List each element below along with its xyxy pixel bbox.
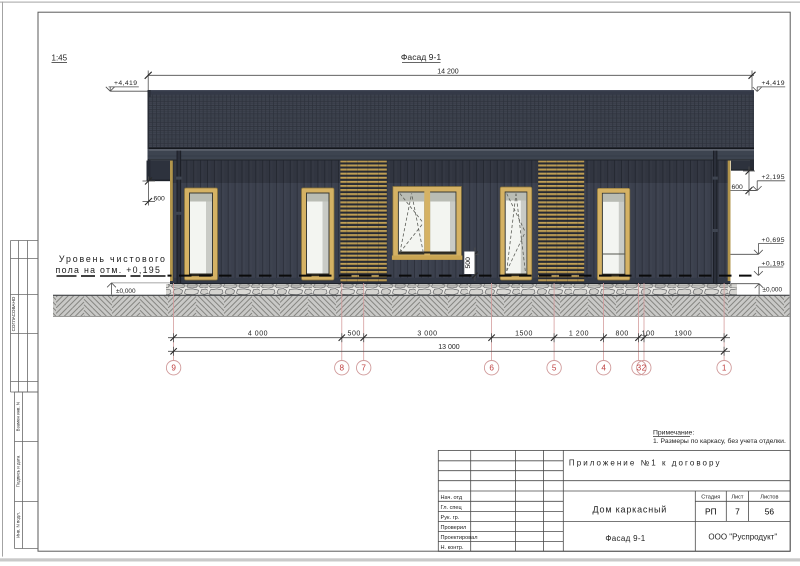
svg-text:Взамен инв. N: Взамен инв. N (16, 402, 21, 431)
svg-text:±0,000: ±0,000 (116, 288, 136, 295)
svg-text:Рук. гр.: Рук. гр. (441, 515, 460, 521)
svg-text:Примечание:: Примечание: (653, 430, 694, 437)
svg-text:±0,000: ±0,000 (763, 286, 783, 293)
svg-text:РП: РП (705, 507, 717, 517)
svg-text:600: 600 (732, 184, 744, 191)
svg-text:600: 600 (154, 195, 166, 202)
svg-text:13 000: 13 000 (438, 344, 460, 351)
svg-text:Подпись и дата: Подпись и дата (16, 455, 21, 487)
svg-text:14 200: 14 200 (437, 68, 459, 75)
svg-text:+4,419: +4,419 (762, 80, 785, 87)
svg-text:500: 500 (348, 330, 361, 337)
svg-text:Проверил: Проверил (441, 525, 467, 531)
svg-text:1. Размеры по каркасу, без уче: 1. Размеры по каркасу, без учета отделки… (653, 437, 786, 445)
svg-text:Лист: Лист (731, 495, 744, 501)
svg-text:56: 56 (765, 507, 775, 517)
svg-text:СОГЛАСОВАНО: СОГЛАСОВАНО (11, 296, 16, 331)
svg-text:Уровень чистового: Уровень чистового (59, 254, 167, 264)
svg-text:1 200: 1 200 (569, 330, 589, 337)
svg-text:7: 7 (735, 507, 740, 517)
svg-text:пола на отм. +0,195: пола на отм. +0,195 (56, 265, 162, 275)
svg-text:Приложение №1 к договору: Приложение №1 к договору (569, 459, 722, 468)
svg-text:1500: 1500 (515, 330, 533, 337)
svg-text:6: 6 (489, 364, 494, 373)
svg-text:Листов: Листов (760, 495, 778, 501)
svg-text:1: 1 (722, 364, 727, 373)
svg-text:800: 800 (616, 330, 629, 337)
svg-text:Н. контр.: Н. контр. (441, 545, 465, 551)
svg-text:Инв. N подл.: Инв. N подл. (16, 512, 21, 538)
svg-text:Стадия: Стадия (701, 495, 720, 501)
svg-text:3 000: 3 000 (417, 330, 437, 337)
svg-text:1:45: 1:45 (52, 54, 68, 63)
svg-text:7: 7 (361, 364, 366, 373)
svg-text:100: 100 (642, 330, 655, 337)
svg-text:Нач. отд: Нач. отд (441, 495, 463, 501)
svg-text:Дом каркасный: Дом каркасный (593, 505, 668, 515)
svg-text:+4,419: +4,419 (114, 80, 137, 87)
svg-text:Проектировал: Проектировал (441, 535, 478, 541)
svg-text:+2,195: +2,195 (762, 174, 785, 181)
svg-text:Фасад 9-1: Фасад 9-1 (605, 534, 645, 543)
svg-text:2: 2 (642, 364, 647, 373)
svg-text:500: 500 (465, 257, 472, 269)
svg-text:5: 5 (552, 364, 557, 373)
svg-text:8: 8 (340, 364, 345, 373)
svg-text:+0,195: +0,195 (762, 260, 785, 267)
svg-text:Гл. спец: Гл. спец (441, 505, 463, 511)
svg-text:Фасад 9-1: Фасад 9-1 (401, 52, 441, 62)
svg-text:4 000: 4 000 (248, 330, 268, 337)
svg-text:+0,695: +0,695 (762, 237, 785, 244)
svg-text:4: 4 (601, 364, 606, 373)
svg-text:1900: 1900 (674, 330, 692, 337)
svg-text:9: 9 (171, 364, 176, 373)
svg-text:ООО "Руспродукт": ООО "Руспродукт" (708, 533, 777, 542)
